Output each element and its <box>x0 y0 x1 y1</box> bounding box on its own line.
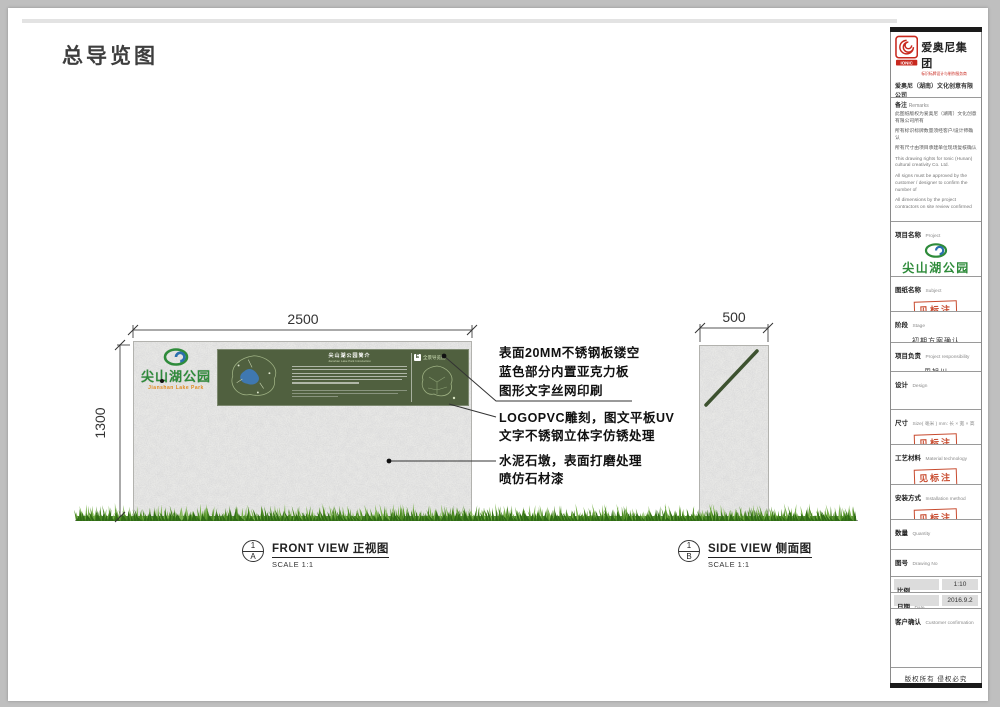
annotation-2: LOGOPVC雕刻，图文平板UV 文字不锈钢立体字仿锈处理 <box>499 409 674 445</box>
annotation-3: 水泥石墩，表面打磨处理 喷仿石材漆 <box>499 452 642 488</box>
section-proportion: 比例 Proportion 1:10 <box>891 577 981 593</box>
front-view-scale: SCALE 1:1 <box>272 560 389 569</box>
company-full-name: 爱奥尼（湖南）文化创意有限公司 <box>895 81 977 98</box>
section-copyright: 版权所有 侵权必究 <box>891 668 981 683</box>
side-view-ref-bubble: 1 B <box>678 540 700 562</box>
material-stamp: 见标注 <box>914 468 958 485</box>
panel-body-textlines <box>292 366 407 386</box>
remark-zh-2: 所有标识标牌数量须经客户/设计师确认 <box>895 129 977 143</box>
proportion-value: 1:10 <box>942 579 978 590</box>
panel-text-area: 尖山湖公园简介 Jianshan Lake Park Introduction <box>290 350 411 405</box>
front-view-label: 1 A FRONT VIEW 正视图 SCALE 1:1 <box>242 540 389 569</box>
company-group-name: 爱奥尼集团 <box>921 39 977 71</box>
company-block: IONIC 爱奥尼集团 标识标牌设计与制作服务商 爱奥尼（湖南）文化创意有限公司… <box>891 32 981 98</box>
section-stage: 阶段 Stage 初期方案确认 <box>891 312 981 343</box>
side-view-title: SIDE VIEW 侧面图 <box>708 540 812 558</box>
remark-en-2: All signs must be approved by the custom… <box>895 174 977 194</box>
section-customer: 客户确认 Customer confirmation <box>891 609 981 668</box>
section-material: 工艺材料 Material technology 见标注 <box>891 445 981 485</box>
project-park-name: 尖山湖公园 <box>895 259 977 276</box>
dim-text-2500: 2500 <box>268 311 338 327</box>
wall-park-name: 尖山湖公园 <box>136 366 216 385</box>
annotation-1: 表面20MM不锈钢板镂空 蓝色部分内置亚克力板 图形文字丝网印刷 <box>499 344 640 401</box>
section-design: 设计 Design <box>891 372 981 410</box>
date-value: 2016.9.2 <box>942 595 978 606</box>
company-tagline: 标识标牌设计与制作服务商 <box>921 72 977 77</box>
section-project: 项目名称 Project 尖山湖公园 Jianshan Lake Park <box>891 222 981 277</box>
section-responsibility: 项目负责 Project responsibility 周旭川 <box>891 343 981 372</box>
section-subject: 图纸名称 Subject 见标注 <box>891 277 981 312</box>
remarks-block: 备注 Remarks 此图纸版权为爱奥尼（湖南）文化创意有限公司所有 所有标识标… <box>891 98 981 222</box>
stage-value: 初期方案确认 <box>895 336 977 343</box>
side-view-label: 1 B SIDE VIEW 侧面图 SCALE 1:1 <box>678 540 812 569</box>
front-view-title: FRONT VIEW 正视图 <box>272 540 389 558</box>
section-installation: 安装方式 Installation method 见标注 <box>891 485 981 520</box>
park-swirl-icon <box>163 348 189 366</box>
section-quantity: 数量 Quantity <box>891 520 981 550</box>
side-view-scale: SCALE 1:1 <box>708 560 812 569</box>
remark-en-1: This drawing rights for Ionic (Hunan) cu… <box>895 157 977 170</box>
subject-stamp: 见标注 <box>914 300 958 312</box>
titleblock-bottom-bar <box>890 683 982 688</box>
side-wall-granite <box>699 345 769 518</box>
page-title: 总导览图 <box>62 40 158 70</box>
panel-mini-map <box>414 363 460 403</box>
section-size: 尺寸 Size( 毫米 ) mm: 长 × 宽 × 高 见标注 <box>891 410 981 445</box>
panel-corner-letter: E <box>414 354 421 361</box>
panel-subtitle: Jianshan Lake Park Introduction <box>292 359 407 363</box>
section-drawing-no: 图号 Drawing No <box>891 550 981 577</box>
section-date: 日期 Date 2016.9.2 <box>891 593 981 609</box>
remark-en-3: All dimensions by the project contractor… <box>895 198 977 211</box>
project-swirl-icon <box>924 243 948 258</box>
dim-text-1300: 1300 <box>92 403 108 443</box>
ionic-logo-text: IONIC <box>900 60 913 65</box>
wall-park-name-en: Jianshan Lake Park <box>136 385 216 391</box>
ionic-logo-icon: IONIC <box>895 35 918 67</box>
remark-zh-1: 此图纸版权为爱奥尼（湖南）文化创意有限公司所有 <box>895 112 977 126</box>
panel-overview-area: E 全景导览图 <box>411 353 468 402</box>
drawing-sheet-canvas: 总导览图 尖山湖公园 Jianshan Lake Park 尖山湖公园简介 <box>0 0 1000 707</box>
panel-footnote-textlines <box>292 390 407 400</box>
dim-text-500: 500 <box>712 309 756 325</box>
sign-panel: 尖山湖公园简介 Jianshan Lake Park Introduction … <box>217 349 469 406</box>
installation-stamp: 见标注 <box>914 508 958 520</box>
panel-corner-label: 全景导览图 <box>423 355 446 361</box>
panel-park-map <box>218 350 290 405</box>
sheet-top-border <box>22 19 897 23</box>
wall-park-logo: 尖山湖公园 Jianshan Lake Park <box>136 348 216 391</box>
front-view-ref-bubble: 1 A <box>242 540 264 562</box>
title-block: IONIC 爱奥尼集团 标识标牌设计与制作服务商 爱奥尼（湖南）文化创意有限公司… <box>890 27 982 688</box>
size-stamp: 见标注 <box>914 433 958 445</box>
remark-zh-3: 所有尺寸由项目承建单位现场复核确认 <box>895 146 977 153</box>
